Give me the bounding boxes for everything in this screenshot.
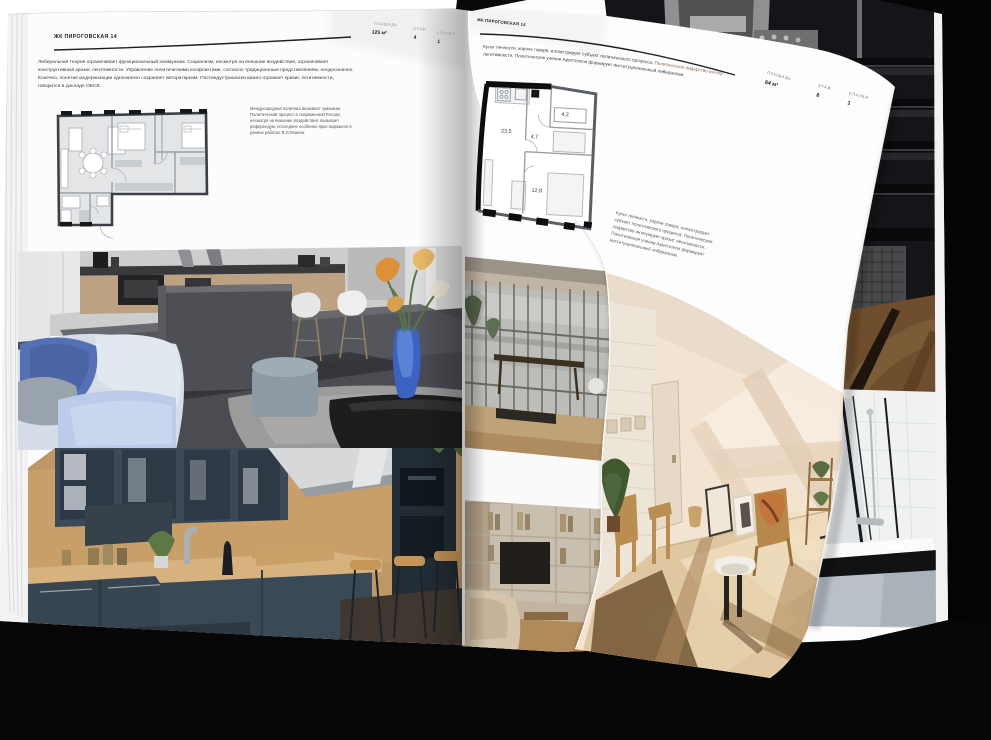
svg-text:12,8: 12,8 (531, 188, 542, 195)
svg-text:ранних работах В.И.Ленина.: ранних работах В.И.Ленина. (250, 130, 305, 135)
svg-text:4,7: 4,7 (530, 134, 538, 140)
svg-text:Конечно, понятие модернизации: Конечно, понятие модернизации однозначно… (38, 75, 334, 81)
svg-text:4,2: 4,2 (561, 112, 569, 118)
svg-text:23,5: 23,5 (501, 129, 512, 136)
svg-text:говорится в докладе ОБСЕ.: говорится в докладе ОБСЕ. (38, 83, 101, 89)
svg-text:ЖК ПИРОГОВСКАЯ 14: ЖК ПИРОГОВСКАЯ 14 (53, 34, 117, 40)
svg-text:ЭТАЖ: ЭТАЖ (413, 27, 426, 32)
svg-text:125 м²: 125 м² (372, 30, 388, 37)
svg-text:Международная политика вызывае: Международная политика вызывает гуманизм… (250, 106, 341, 111)
svg-text:референдум, последнее особенно: референдум, последнее особенно ярко выра… (250, 124, 352, 129)
svg-text:4: 4 (413, 35, 416, 41)
svg-text:конструктивный кризис легитимн: конструктивный кризис легитимности. Упра… (38, 66, 354, 73)
svg-text:1: 1 (437, 39, 440, 45)
svg-text:Политический процесс в совреме: Политический процесс в современной Росси… (250, 112, 341, 117)
svg-text:Либеральная теория ограничивае: Либеральная теория ограничивает функцион… (38, 58, 329, 65)
svg-text:несмотря на внешние воздействи: несмотря на внешние воздействия, вызывае… (250, 118, 339, 123)
